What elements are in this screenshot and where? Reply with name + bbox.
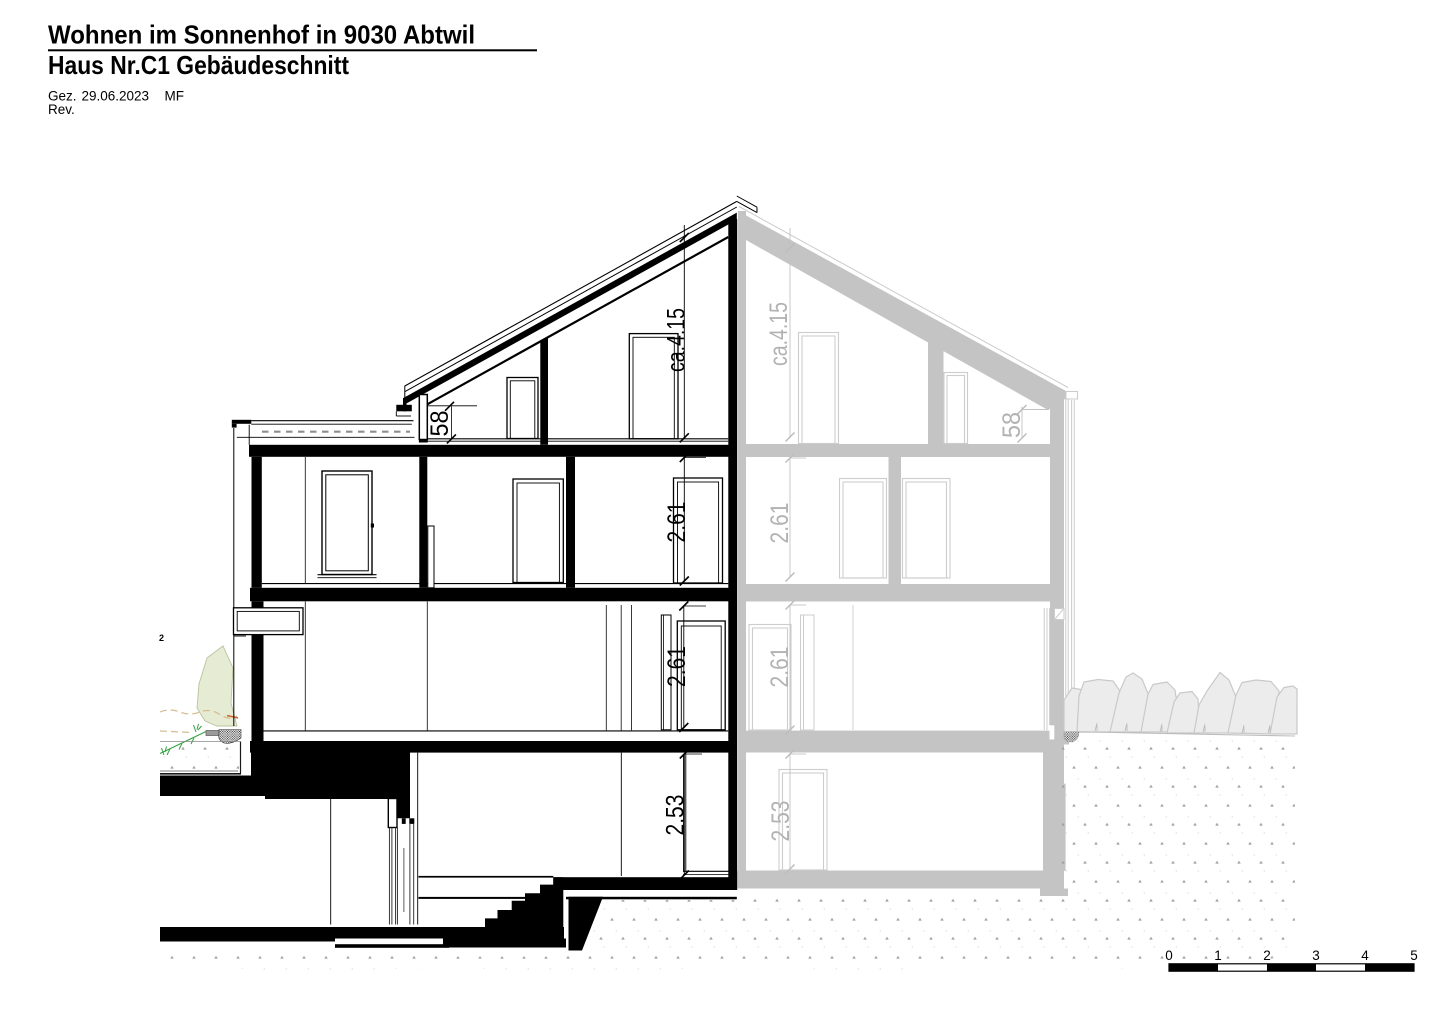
svg-text:0: 0 — [1165, 948, 1173, 963]
svg-text:58: 58 — [998, 412, 1026, 438]
svg-text:1: 1 — [1214, 948, 1222, 963]
svg-text:MF: MF — [165, 89, 185, 104]
svg-text:2.61: 2.61 — [766, 647, 794, 688]
svg-text:2.61: 2.61 — [663, 646, 691, 687]
svg-text:5: 5 — [1410, 948, 1418, 963]
svg-text:2.53: 2.53 — [661, 795, 689, 836]
svg-text:2.53: 2.53 — [767, 801, 795, 842]
svg-text:Haus Nr.C1 Gebäudeschnitt: Haus Nr.C1 Gebäudeschnitt — [48, 50, 349, 80]
svg-text:2.61: 2.61 — [663, 502, 691, 543]
svg-text:ca.4.15: ca.4.15 — [765, 302, 793, 366]
svg-text:58: 58 — [426, 411, 454, 437]
svg-text:ca.4.15: ca.4.15 — [663, 308, 691, 372]
svg-text:29.06.2023: 29.06.2023 — [82, 89, 150, 104]
svg-text:4: 4 — [1361, 948, 1369, 963]
svg-text:Wohnen im Sonnenhof in 9030 Ab: Wohnen im Sonnenhof in 9030 Abtwil — [48, 20, 475, 50]
svg-text:Rev.: Rev. — [48, 102, 75, 117]
svg-text:2.61: 2.61 — [766, 503, 794, 544]
svg-text:3: 3 — [1312, 948, 1320, 963]
svg-text:2: 2 — [159, 633, 164, 643]
svg-text:2: 2 — [1263, 948, 1271, 963]
